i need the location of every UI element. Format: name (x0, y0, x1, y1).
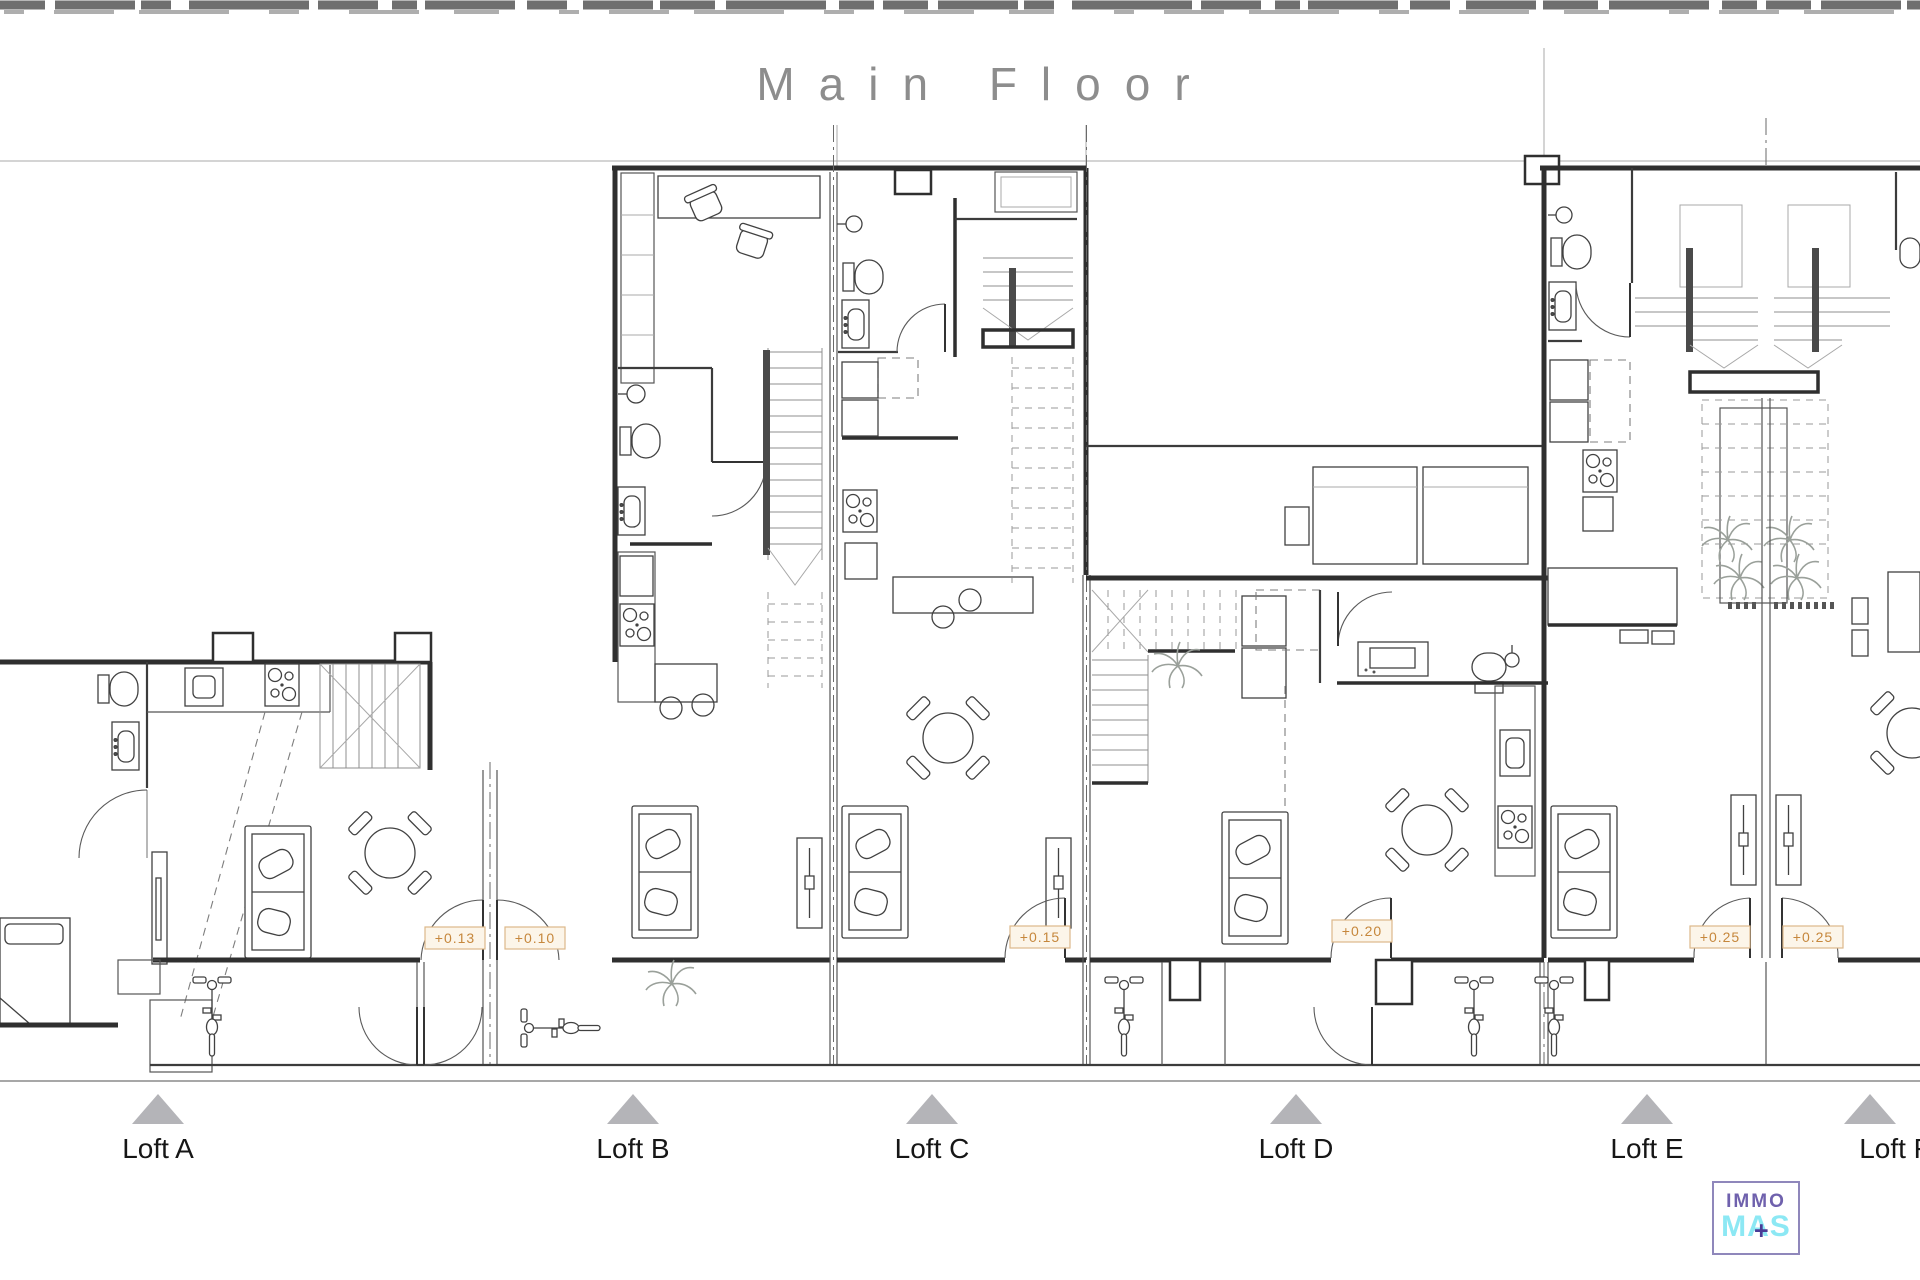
svg-text:+0.10: +0.10 (515, 930, 555, 946)
toilet-symbol (620, 424, 660, 458)
stove-symbol (1498, 806, 1532, 848)
sink-symbol (1549, 282, 1576, 330)
floorplan-drawing: Main Floor (0, 0, 1920, 1280)
elevation-tag: +0.15 (1010, 926, 1070, 948)
logo-plus-icon: + (1754, 1219, 1769, 1244)
elevation-tag: +0.25 (1690, 926, 1750, 948)
sofa-symbol (842, 806, 908, 938)
loft-a-tv-wall (152, 852, 167, 964)
sofa-symbol (1551, 806, 1617, 938)
tv-panel-symbol (1731, 795, 1756, 885)
svg-text:Loft B: Loft B (596, 1133, 669, 1164)
stove-symbol (1583, 450, 1617, 492)
svg-text:+0.20: +0.20 (1342, 923, 1382, 939)
toilet-symbol (1551, 235, 1591, 269)
stove-symbol (620, 604, 654, 646)
sink-symbol (112, 722, 139, 770)
immomas-logo: IMMO MAS + (1712, 1181, 1800, 1255)
svg-text:+0.25: +0.25 (1793, 929, 1833, 945)
svg-text:+0.25: +0.25 (1700, 929, 1740, 945)
svg-text:+0.13: +0.13 (435, 930, 475, 946)
svg-text:+0.15: +0.15 (1020, 929, 1060, 945)
logo-line1: IMMO (1714, 1192, 1798, 1211)
sofa-symbol (1222, 812, 1288, 944)
sofa-symbol (245, 826, 311, 958)
sofa-symbol (632, 806, 698, 938)
stove-symbol (843, 490, 877, 532)
sink-symbol (842, 300, 869, 348)
svg-text:Loft F: Loft F (1859, 1133, 1920, 1164)
tv-panel-symbol (1776, 795, 1801, 885)
page-title: Main Floor (756, 58, 1213, 110)
tv-panel-symbol (797, 838, 822, 928)
elevation-tag: +0.25 (1783, 926, 1843, 948)
floorplan-page: Main Floor (0, 0, 1920, 1280)
elevation-tag: +0.10 (505, 927, 565, 949)
sink-symbol (618, 487, 645, 535)
tv-panel-symbol (1046, 838, 1071, 928)
stove-symbol (265, 664, 299, 706)
svg-text:Loft D: Loft D (1259, 1133, 1334, 1164)
loft-a-bed (0, 918, 70, 1024)
svg-text:Loft A: Loft A (122, 1133, 194, 1164)
svg-text:Loft E: Loft E (1610, 1133, 1683, 1164)
elevation-tag: +0.20 (1332, 920, 1392, 942)
toilet-symbol (98, 672, 138, 706)
toilet-symbol (843, 260, 883, 294)
svg-text:Loft C: Loft C (895, 1133, 970, 1164)
elevation-tag: +0.13 (425, 927, 485, 949)
